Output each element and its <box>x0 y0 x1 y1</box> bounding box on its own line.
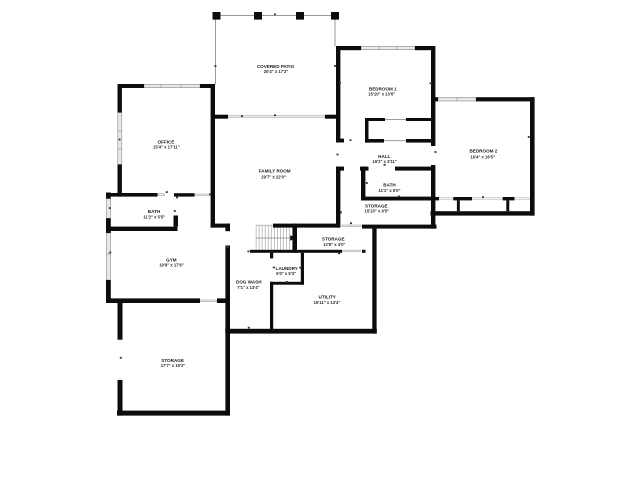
svg-text:15'4" x 17'11": 15'4" x 17'11" <box>153 145 180 150</box>
svg-text:16'2" x 3'11": 16'2" x 3'11" <box>373 159 397 164</box>
svg-text:FAMILY ROOM: FAMILY ROOM <box>259 169 291 174</box>
svg-text:STORAGE: STORAGE <box>322 236 345 241</box>
svg-text:16'11" x 13'4": 16'11" x 13'4" <box>314 300 341 305</box>
svg-text:15'10" x 9'5": 15'10" x 9'5" <box>365 209 390 214</box>
svg-text:BATH: BATH <box>148 209 161 214</box>
svg-text:20'4" x 17'2": 20'4" x 17'2" <box>264 69 289 74</box>
svg-text:15'10" x 13'6": 15'10" x 13'6" <box>368 91 395 96</box>
svg-text:19'9" x 17'6": 19'9" x 17'6" <box>159 263 184 268</box>
svg-text:DOG WASH: DOG WASH <box>236 280 262 285</box>
svg-text:11'2" x 5'5": 11'2" x 5'5" <box>143 215 165 220</box>
svg-text:UTILITY: UTILITY <box>319 294 336 299</box>
svg-text:7'1" x 13'4": 7'1" x 13'4" <box>237 285 259 290</box>
svg-text:29'7" x 22'0": 29'7" x 22'0" <box>261 175 286 180</box>
svg-text:11'1" x 5'0": 11'1" x 5'0" <box>378 188 400 193</box>
svg-text:5'0" x 5'3": 5'0" x 5'3" <box>276 271 296 276</box>
svg-text:BATH: BATH <box>383 182 396 187</box>
svg-text:16'4" x 16'5": 16'4" x 16'5" <box>470 155 495 160</box>
svg-text:12'8" x 4'0": 12'8" x 4'0" <box>323 242 345 247</box>
svg-text:17'7" x 19'2": 17'7" x 19'2" <box>161 363 186 368</box>
svg-text:BEDROOM 2: BEDROOM 2 <box>469 148 497 153</box>
